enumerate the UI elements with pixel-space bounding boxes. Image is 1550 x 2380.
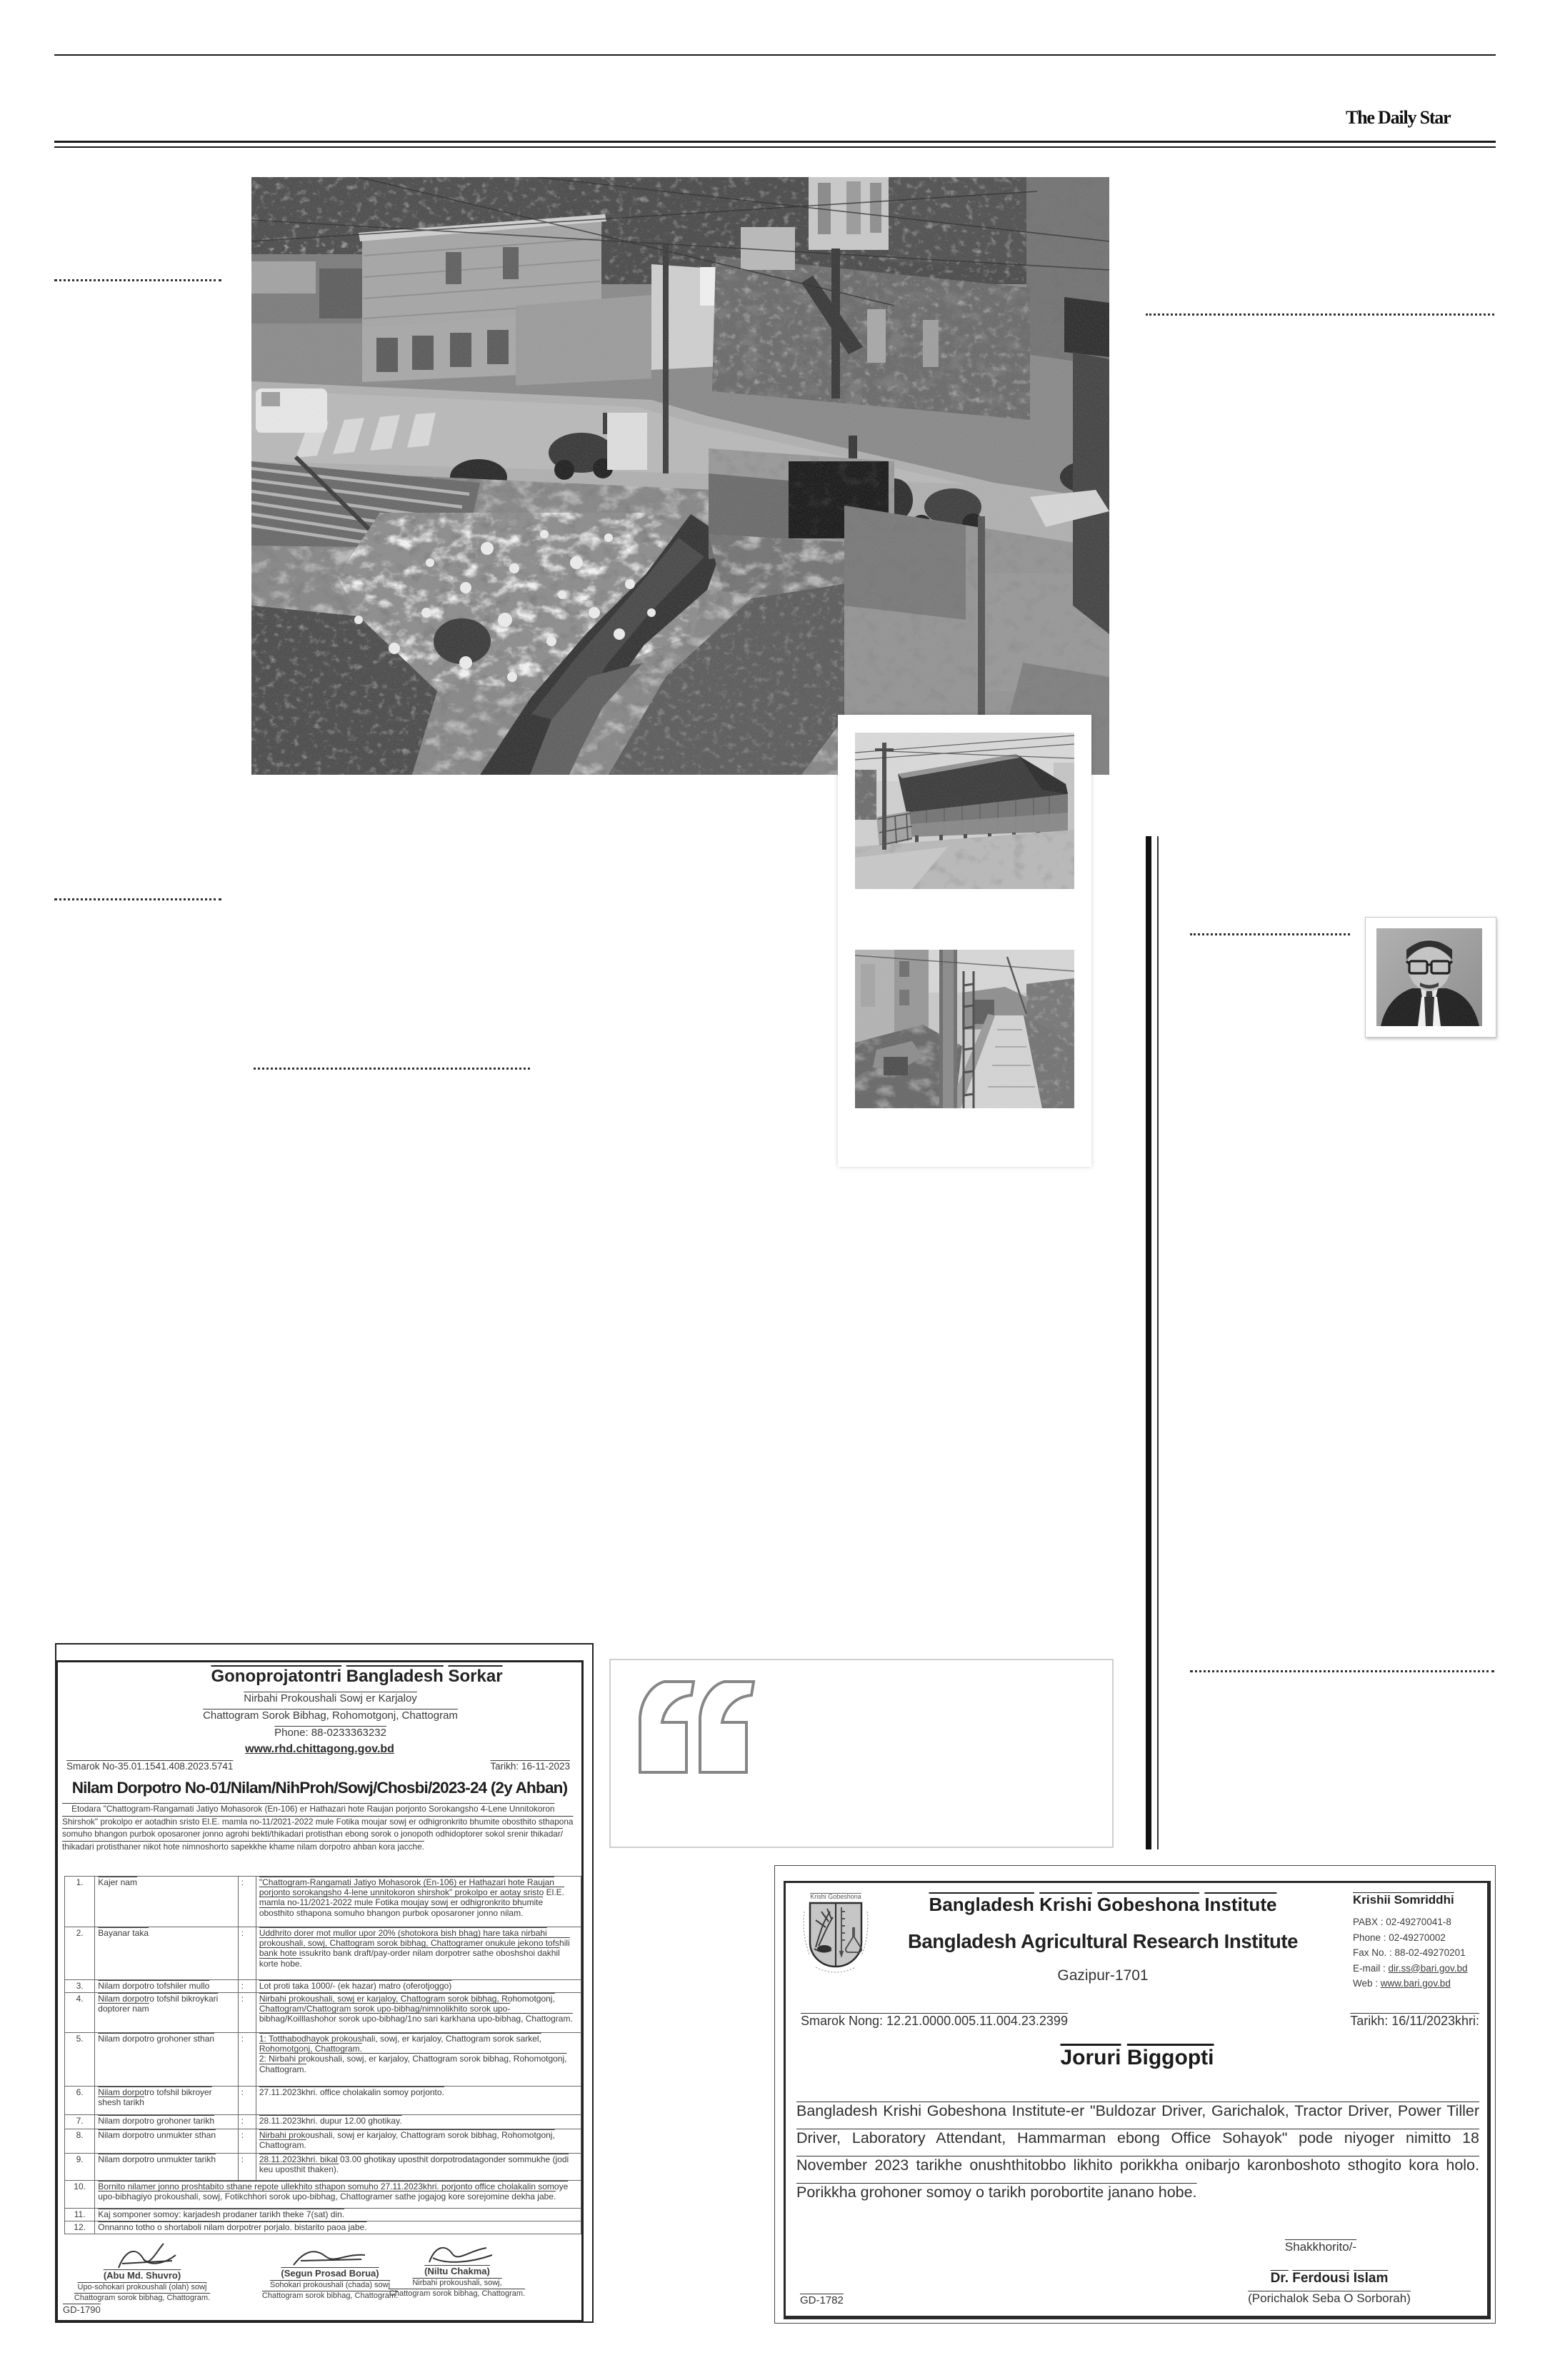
svg-text:Krishi Gobeshona: Krishi Gobeshona bbox=[810, 1893, 861, 1900]
